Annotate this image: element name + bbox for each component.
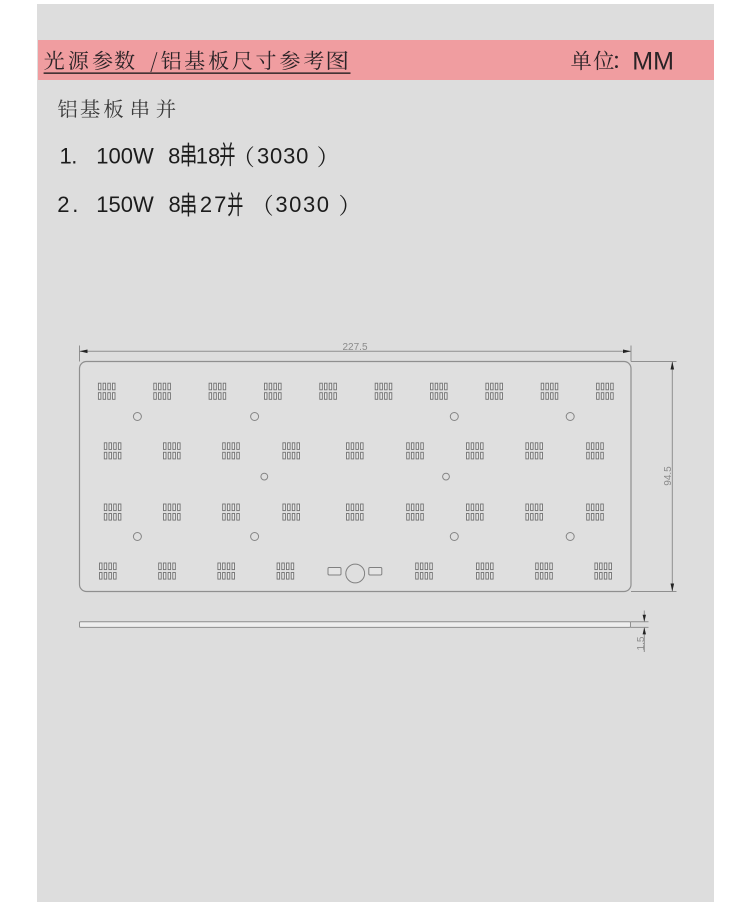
svg-text:1.5: 1.5 (636, 636, 647, 650)
svg-text:.: . (72, 192, 78, 217)
svg-text:.: . (71, 144, 77, 169)
svg-text:3030: 3030 (257, 144, 309, 169)
svg-text:1: 1 (60, 144, 72, 169)
svg-text:18: 18 (196, 144, 220, 169)
svg-text:8: 8 (169, 192, 181, 217)
svg-text:150W: 150W (96, 192, 154, 217)
svg-text:27: 27 (200, 192, 228, 217)
svg-text:3030: 3030 (275, 192, 330, 217)
svg-text:227.5: 227.5 (342, 342, 367, 353)
svg-text:100W: 100W (96, 144, 154, 169)
svg-text:2: 2 (57, 192, 69, 217)
svg-text:94.5: 94.5 (663, 466, 674, 486)
svg-text:MM: MM (632, 47, 674, 75)
svg-text:8: 8 (168, 144, 180, 169)
